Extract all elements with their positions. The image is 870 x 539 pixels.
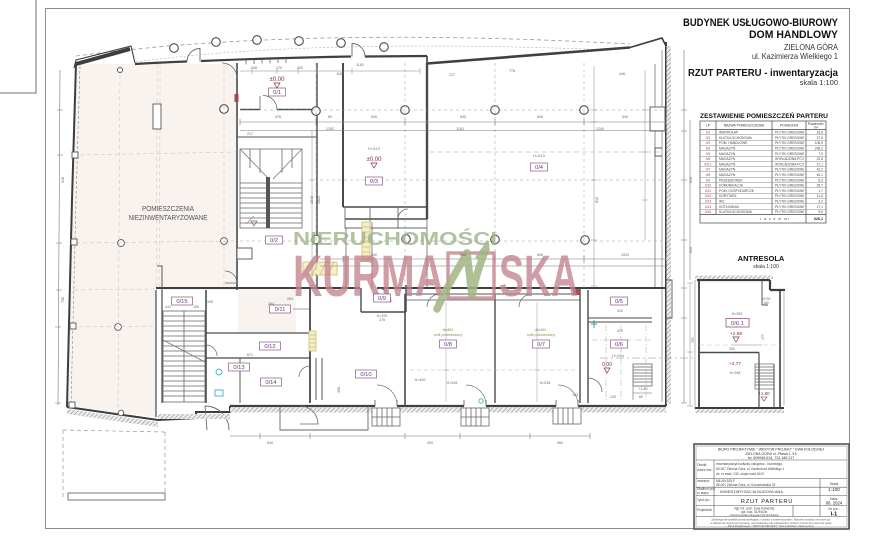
svg-text:0/1: 0/1 xyxy=(273,90,281,96)
svg-text:0/14: 0/14 xyxy=(265,380,277,386)
svg-text:NIEZINWENTARYZOWANE: NIEZINWENTARYZOWANE xyxy=(129,213,208,222)
svg-text:1163: 1163 xyxy=(456,127,464,131)
svg-text:sufit podwieszany: sufit podwieszany xyxy=(527,333,556,337)
svg-text:1:100: 1:100 xyxy=(828,487,840,492)
svg-text:476: 476 xyxy=(275,115,281,119)
svg-text:PŁYTKI GRESOWE: PŁYTKI GRESOWE xyxy=(775,210,805,214)
svg-text:MAGAZYN: MAGAZYN xyxy=(719,168,736,172)
svg-text:248,2: 248,2 xyxy=(815,147,823,151)
svg-text:LP: LP xyxy=(706,124,711,128)
svg-text:27,8: 27,8 xyxy=(817,136,824,140)
svg-text:Nr rys.:: Nr rys.: xyxy=(829,507,840,511)
svg-text:750: 750 xyxy=(691,337,695,343)
svg-text:0/9: 0/9 xyxy=(706,178,711,182)
svg-text:810: 810 xyxy=(689,247,693,253)
svg-text:INWENTARYZACJA BUDOWLANA: INWENTARYZACJA BUDOWLANA xyxy=(720,489,783,494)
svg-text:1024: 1024 xyxy=(317,196,321,204)
svg-text:217: 217 xyxy=(247,132,253,136)
svg-text:1163: 1163 xyxy=(356,63,364,67)
svg-text:9,6: 9,6 xyxy=(818,210,823,214)
svg-text:180: 180 xyxy=(763,301,769,305)
svg-text:06. 2024: 06. 2024 xyxy=(826,501,843,506)
svg-text:0/8: 0/8 xyxy=(444,342,452,348)
svg-text:472: 472 xyxy=(617,329,623,333)
svg-text:WC: WC xyxy=(719,200,725,204)
svg-text:dz. nr ewid. 130, obręb ewid: dz. nr ewid. 130, obręb ewid 0019 xyxy=(716,472,764,476)
svg-text:MAGAZYN: MAGAZYN xyxy=(719,162,736,166)
svg-text:0/2: 0/2 xyxy=(270,238,278,244)
svg-text:0/13: 0/13 xyxy=(233,365,244,371)
svg-text:778: 778 xyxy=(509,69,515,73)
svg-text:WYKŁADZINA PCV: WYKŁADZINA PCV xyxy=(775,157,805,161)
svg-text:KLATKA SCHODOWA: KLATKA SCHODOWA xyxy=(719,136,753,140)
svg-text:0/12: 0/12 xyxy=(705,194,712,198)
svg-text:+1,80: +1,80 xyxy=(638,387,647,391)
svg-text:0/15: 0/15 xyxy=(176,299,187,305)
svg-text:276: 276 xyxy=(379,318,385,322)
svg-text:124: 124 xyxy=(572,393,578,397)
svg-text:członek Lubuskiej Okręgowej Iz: członek Lubuskiej Okręgowej Izby Archite… xyxy=(730,514,779,517)
svg-text:65-001 Zielona Góra, ul. Kożuc: 65-001 Zielona Góra, ul. Kożuchowska 32 xyxy=(716,483,776,487)
svg-text:2,2: 2,2 xyxy=(818,200,823,204)
svg-text:+1,80: +1,80 xyxy=(758,391,770,396)
svg-text:PŁYTKI GRESOWE: PŁYTKI GRESOWE xyxy=(775,184,805,188)
svg-text:177: 177 xyxy=(761,334,765,340)
svg-text:141: 141 xyxy=(165,305,171,309)
svg-text:22,8: 22,8 xyxy=(817,157,824,161)
svg-text:626,1: 626,1 xyxy=(814,217,823,221)
svg-text:0/10: 0/10 xyxy=(705,184,712,188)
svg-text:Inwentaryzacja budynku usługow: Inwentaryzacja budynku usługowo - biurow… xyxy=(716,462,783,466)
svg-text:6,3: 6,3 xyxy=(818,178,823,182)
svg-text:H=619: H=619 xyxy=(368,146,381,151)
svg-text:PŁYTKI GRESOWE: PŁYTKI GRESOWE xyxy=(775,152,805,156)
svg-text:410: 410 xyxy=(617,309,623,313)
svg-text:+2,77: +2,77 xyxy=(729,361,741,367)
svg-text:H=264: H=264 xyxy=(612,353,625,358)
svg-text:0/11: 0/11 xyxy=(705,189,711,193)
svg-text:±0,00: ±0,00 xyxy=(270,77,286,83)
svg-text:758: 758 xyxy=(61,297,65,303)
svg-text:810: 810 xyxy=(595,197,599,203)
svg-text:H=400: H=400 xyxy=(415,378,426,382)
svg-text:POM. HANDLOWE: POM. HANDLOWE xyxy=(719,141,748,145)
svg-text:1548: 1548 xyxy=(310,196,314,204)
svg-text:540: 540 xyxy=(371,253,377,257)
svg-text:PŁYTKI GRESOWE: PŁYTKI GRESOWE xyxy=(775,168,805,172)
svg-text:ZESTAWIENIE POMIESZCZEŃ PARTER: ZESTAWIENIE POMIESZCZEŃ PARTERU xyxy=(700,111,828,120)
svg-text:MAGAZYN: MAGAZYN xyxy=(719,173,736,177)
svg-text:r a z e m m²: r a z e m m² xyxy=(760,217,790,221)
svg-text:KOMUNIKACJA: KOMUNIKACJA xyxy=(719,184,744,188)
svg-text:+2,88: +2,88 xyxy=(730,331,742,337)
svg-text:ZIELONA GÓRA: ZIELONA GÓRA xyxy=(784,43,839,52)
svg-text:PŁYTKI GRESOWE: PŁYTKI GRESOWE xyxy=(775,131,805,135)
svg-text:WIATROŁAP: WIATROŁAP xyxy=(719,131,739,135)
svg-text:ANTRESOLA: ANTRESOLA xyxy=(738,254,785,263)
svg-text:H=610: H=610 xyxy=(533,153,546,158)
svg-text:640: 640 xyxy=(460,253,466,257)
svg-text:446: 446 xyxy=(619,72,625,76)
svg-text:106,9: 106,9 xyxy=(815,141,823,145)
svg-text:MAGAZYN: MAGAZYN xyxy=(719,147,736,151)
svg-text:640: 640 xyxy=(537,115,543,119)
svg-text:42,2: 42,2 xyxy=(817,168,824,172)
svg-text:H=516: H=516 xyxy=(540,381,551,385)
svg-text:65-007 Zielona Góra, ul. Kazim: 65-007 Zielona Góra, ul. Kazimierza Wiel… xyxy=(716,467,785,471)
svg-text:PŁYTKI GRESOWE: PŁYTKI GRESOWE xyxy=(775,205,805,209)
svg-text:0/6.1: 0/6.1 xyxy=(704,162,711,166)
svg-text:150: 150 xyxy=(193,305,199,309)
svg-text:358: 358 xyxy=(337,387,341,393)
svg-text:11,6: 11,6 xyxy=(817,194,823,198)
svg-text:120: 120 xyxy=(610,395,616,399)
svg-text:0/11: 0/11 xyxy=(275,307,286,313)
svg-text:MAGAZYN: MAGAZYN xyxy=(719,152,736,156)
svg-text:0/7: 0/7 xyxy=(706,168,711,172)
svg-text:Skala: Skala xyxy=(830,482,839,486)
svg-text:nr etapu: nr etapu xyxy=(697,491,709,495)
svg-text:H=248: H=248 xyxy=(730,371,741,375)
svg-text:948: 948 xyxy=(61,177,65,183)
svg-text:0/14: 0/14 xyxy=(705,205,712,209)
svg-text:0/1: 0/1 xyxy=(706,131,711,135)
svg-text:960: 960 xyxy=(557,441,563,445)
svg-text:PŁYTKI GRESOWE: PŁYTKI GRESOWE xyxy=(775,173,805,177)
svg-text:H=516: H=516 xyxy=(447,381,458,385)
svg-text:skala 1:100: skala 1:100 xyxy=(800,78,838,87)
svg-text:640: 640 xyxy=(267,441,273,445)
svg-text:RZUT PARTERU: RZUT PARTERU xyxy=(741,499,793,505)
svg-text:H=360: H=360 xyxy=(536,328,547,332)
svg-text:BUDYNEK USŁUGOWO-BIUROWY: BUDYNEK USŁUGOWO-BIUROWY xyxy=(683,17,839,29)
svg-text:540: 540 xyxy=(622,115,628,119)
svg-text:25,7: 25,7 xyxy=(817,184,824,188)
svg-text:PŁYTKI GRESOWE: PŁYTKI GRESOWE xyxy=(775,194,805,198)
svg-text:POM. GOSPODARCZE: POM. GOSPODARCZE xyxy=(719,189,755,193)
svg-text:Obiekt:: Obiekt: xyxy=(697,463,707,467)
svg-text:Projektant:: Projektant: xyxy=(697,508,712,512)
svg-text:PŁYTKI GRESOWE: PŁYTKI GRESOWE xyxy=(775,178,805,182)
svg-text:DOM HANDLOWY: DOM HANDLOWY xyxy=(749,29,839,41)
svg-text:Tytuł rys.:: Tytuł rys.: xyxy=(697,498,711,502)
svg-text:0/5: 0/5 xyxy=(615,299,623,305)
svg-text:Adres inw.:: Adres inw.: xyxy=(697,468,713,472)
svg-text:tel. 609948 614, 724 186 217: tel. 609948 614, 724 186 217 xyxy=(748,456,795,460)
svg-text:16,8: 16,8 xyxy=(817,131,824,135)
svg-text:WYKŁADZINA PCV: WYKŁADZINA PCV xyxy=(775,162,805,166)
svg-text:400: 400 xyxy=(427,441,433,445)
svg-text:PŁYTKI GRESOWE: PŁYTKI GRESOWE xyxy=(775,200,805,204)
svg-text:540: 540 xyxy=(371,115,377,119)
svg-text:Biura Projektowego " WEKTOR PR: Biura Projektowego " WEKTOR PROJEKT " Ew… xyxy=(728,524,814,528)
svg-text:109: 109 xyxy=(207,300,213,304)
svg-text:0/2: 0/2 xyxy=(706,136,711,140)
svg-text:0/9: 0/9 xyxy=(378,296,386,302)
svg-text:Inwestor:: Inwestor: xyxy=(697,479,710,483)
svg-text:264: 264 xyxy=(287,297,293,301)
svg-text:217: 217 xyxy=(449,73,455,77)
svg-text:0/13: 0/13 xyxy=(705,200,712,204)
svg-text:H=360: H=360 xyxy=(443,328,454,332)
svg-text:0/10: 0/10 xyxy=(360,372,371,378)
svg-text:640: 640 xyxy=(537,253,543,257)
svg-text:PŁYTKI GRESOWE: PŁYTKI GRESOWE xyxy=(775,136,805,140)
svg-text:H=252: H=252 xyxy=(732,312,743,316)
svg-text:0/15: 0/15 xyxy=(705,210,712,214)
svg-text:I-1: I-1 xyxy=(831,512,838,518)
svg-text:ul. Kazimierza Wielkiego 1: ul. Kazimierza Wielkiego 1 xyxy=(752,52,839,61)
svg-text:170: 170 xyxy=(276,66,282,70)
svg-text:KURMA: KURMA xyxy=(293,244,444,309)
svg-text:±0,00: ±0,00 xyxy=(367,157,383,163)
svg-text:PŁYTKI GRESOWE: PŁYTKI GRESOWE xyxy=(775,147,805,151)
svg-text:0/3: 0/3 xyxy=(370,179,378,185)
svg-text:PŁYTKI GRESOWE: PŁYTKI GRESOWE xyxy=(775,141,805,145)
svg-text:KOTŁOWNIA: KOTŁOWNIA xyxy=(719,205,740,209)
svg-text:0/7: 0/7 xyxy=(537,342,545,348)
svg-text:0/4: 0/4 xyxy=(535,165,544,171)
svg-text:671: 671 xyxy=(247,353,253,357)
svg-text:PŁYTKI GRESOWE: PŁYTKI GRESOWE xyxy=(775,189,805,193)
svg-text:1240: 1240 xyxy=(596,127,604,131)
svg-text:260: 260 xyxy=(729,347,735,351)
svg-text:208: 208 xyxy=(251,66,257,70)
svg-text:NAZWA POMIESZCZENIA: NAZWA POMIESZCZENIA xyxy=(724,124,765,128)
svg-text:sufit podwieszany: sufit podwieszany xyxy=(434,333,463,337)
svg-text:POSADZKA: POSADZKA xyxy=(780,124,799,128)
svg-text:1163: 1163 xyxy=(336,72,344,76)
svg-text:skala 1:100: skala 1:100 xyxy=(753,264,779,270)
svg-text:0/6: 0/6 xyxy=(615,342,623,348)
svg-text:40,1: 40,1 xyxy=(817,173,824,177)
svg-text:60: 60 xyxy=(639,395,643,399)
svg-text:KLATKA SCHODOWA: KLATKA SCHODOWA xyxy=(719,210,753,214)
svg-text:1,7: 1,7 xyxy=(818,189,823,193)
svg-text:1923: 1923 xyxy=(621,253,629,257)
svg-text:KORYTARZ: KORYTARZ xyxy=(719,194,737,198)
svg-text:0/5: 0/5 xyxy=(706,152,711,156)
svg-text:m²: m² xyxy=(814,126,819,130)
svg-text:0/6.1: 0/6.1 xyxy=(731,321,744,327)
svg-text:0/3: 0/3 xyxy=(706,141,711,145)
svg-text:27,1: 27,1 xyxy=(817,162,824,166)
svg-text:POMIESZCZENIA: POMIESZCZENIA xyxy=(142,204,194,213)
svg-text:640: 640 xyxy=(689,177,693,183)
svg-text:0/12: 0/12 xyxy=(264,344,275,350)
svg-text:640: 640 xyxy=(460,115,466,119)
svg-text:PRZEDSIONEK: PRZEDSIONEK xyxy=(719,178,743,182)
svg-text:60: 60 xyxy=(328,115,332,119)
svg-text:1292: 1292 xyxy=(326,127,334,131)
svg-text:17,1: 17,1 xyxy=(817,205,824,209)
svg-text:0/8: 0/8 xyxy=(706,173,711,177)
svg-text:320: 320 xyxy=(297,66,303,70)
svg-text:7,9: 7,9 xyxy=(818,152,823,156)
svg-text:MAGAZYN: MAGAZYN xyxy=(719,157,736,161)
svg-text:0/6: 0/6 xyxy=(706,157,711,161)
svg-text:0,00: 0,00 xyxy=(602,362,612,368)
svg-text:0/4: 0/4 xyxy=(706,147,711,151)
svg-text:264: 264 xyxy=(268,302,274,306)
